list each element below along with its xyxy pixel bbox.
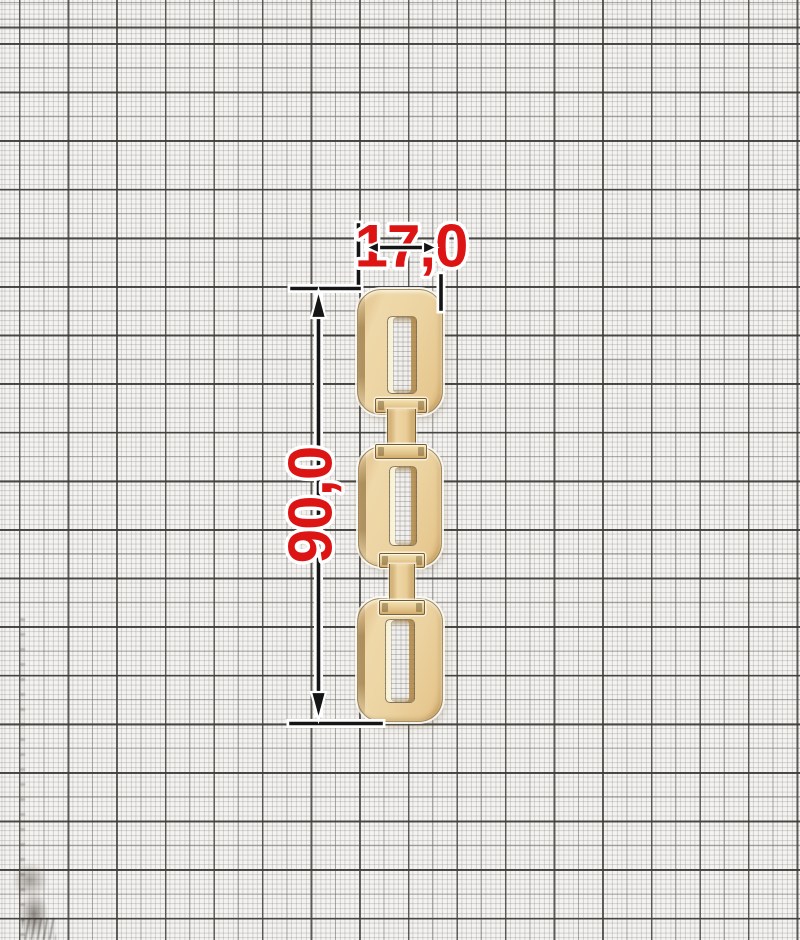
chain-connector-2-bar [389,564,415,603]
chain-link-3 [357,598,443,722]
scanned-drawing-page: 17,0 90,0 [0,0,800,940]
chain-link-hole [385,619,415,703]
chain-link-2 [358,446,442,567]
chain-connector-1-bar [387,409,416,448]
chain-link-hole [389,466,417,546]
chain-link-hole [387,316,417,394]
chain-connector-2-bottom-flange [379,600,425,615]
chain-connector-1-bottom-flange [375,444,427,459]
scan-corner-artifact [22,918,56,940]
chain-link-1 [357,289,443,415]
